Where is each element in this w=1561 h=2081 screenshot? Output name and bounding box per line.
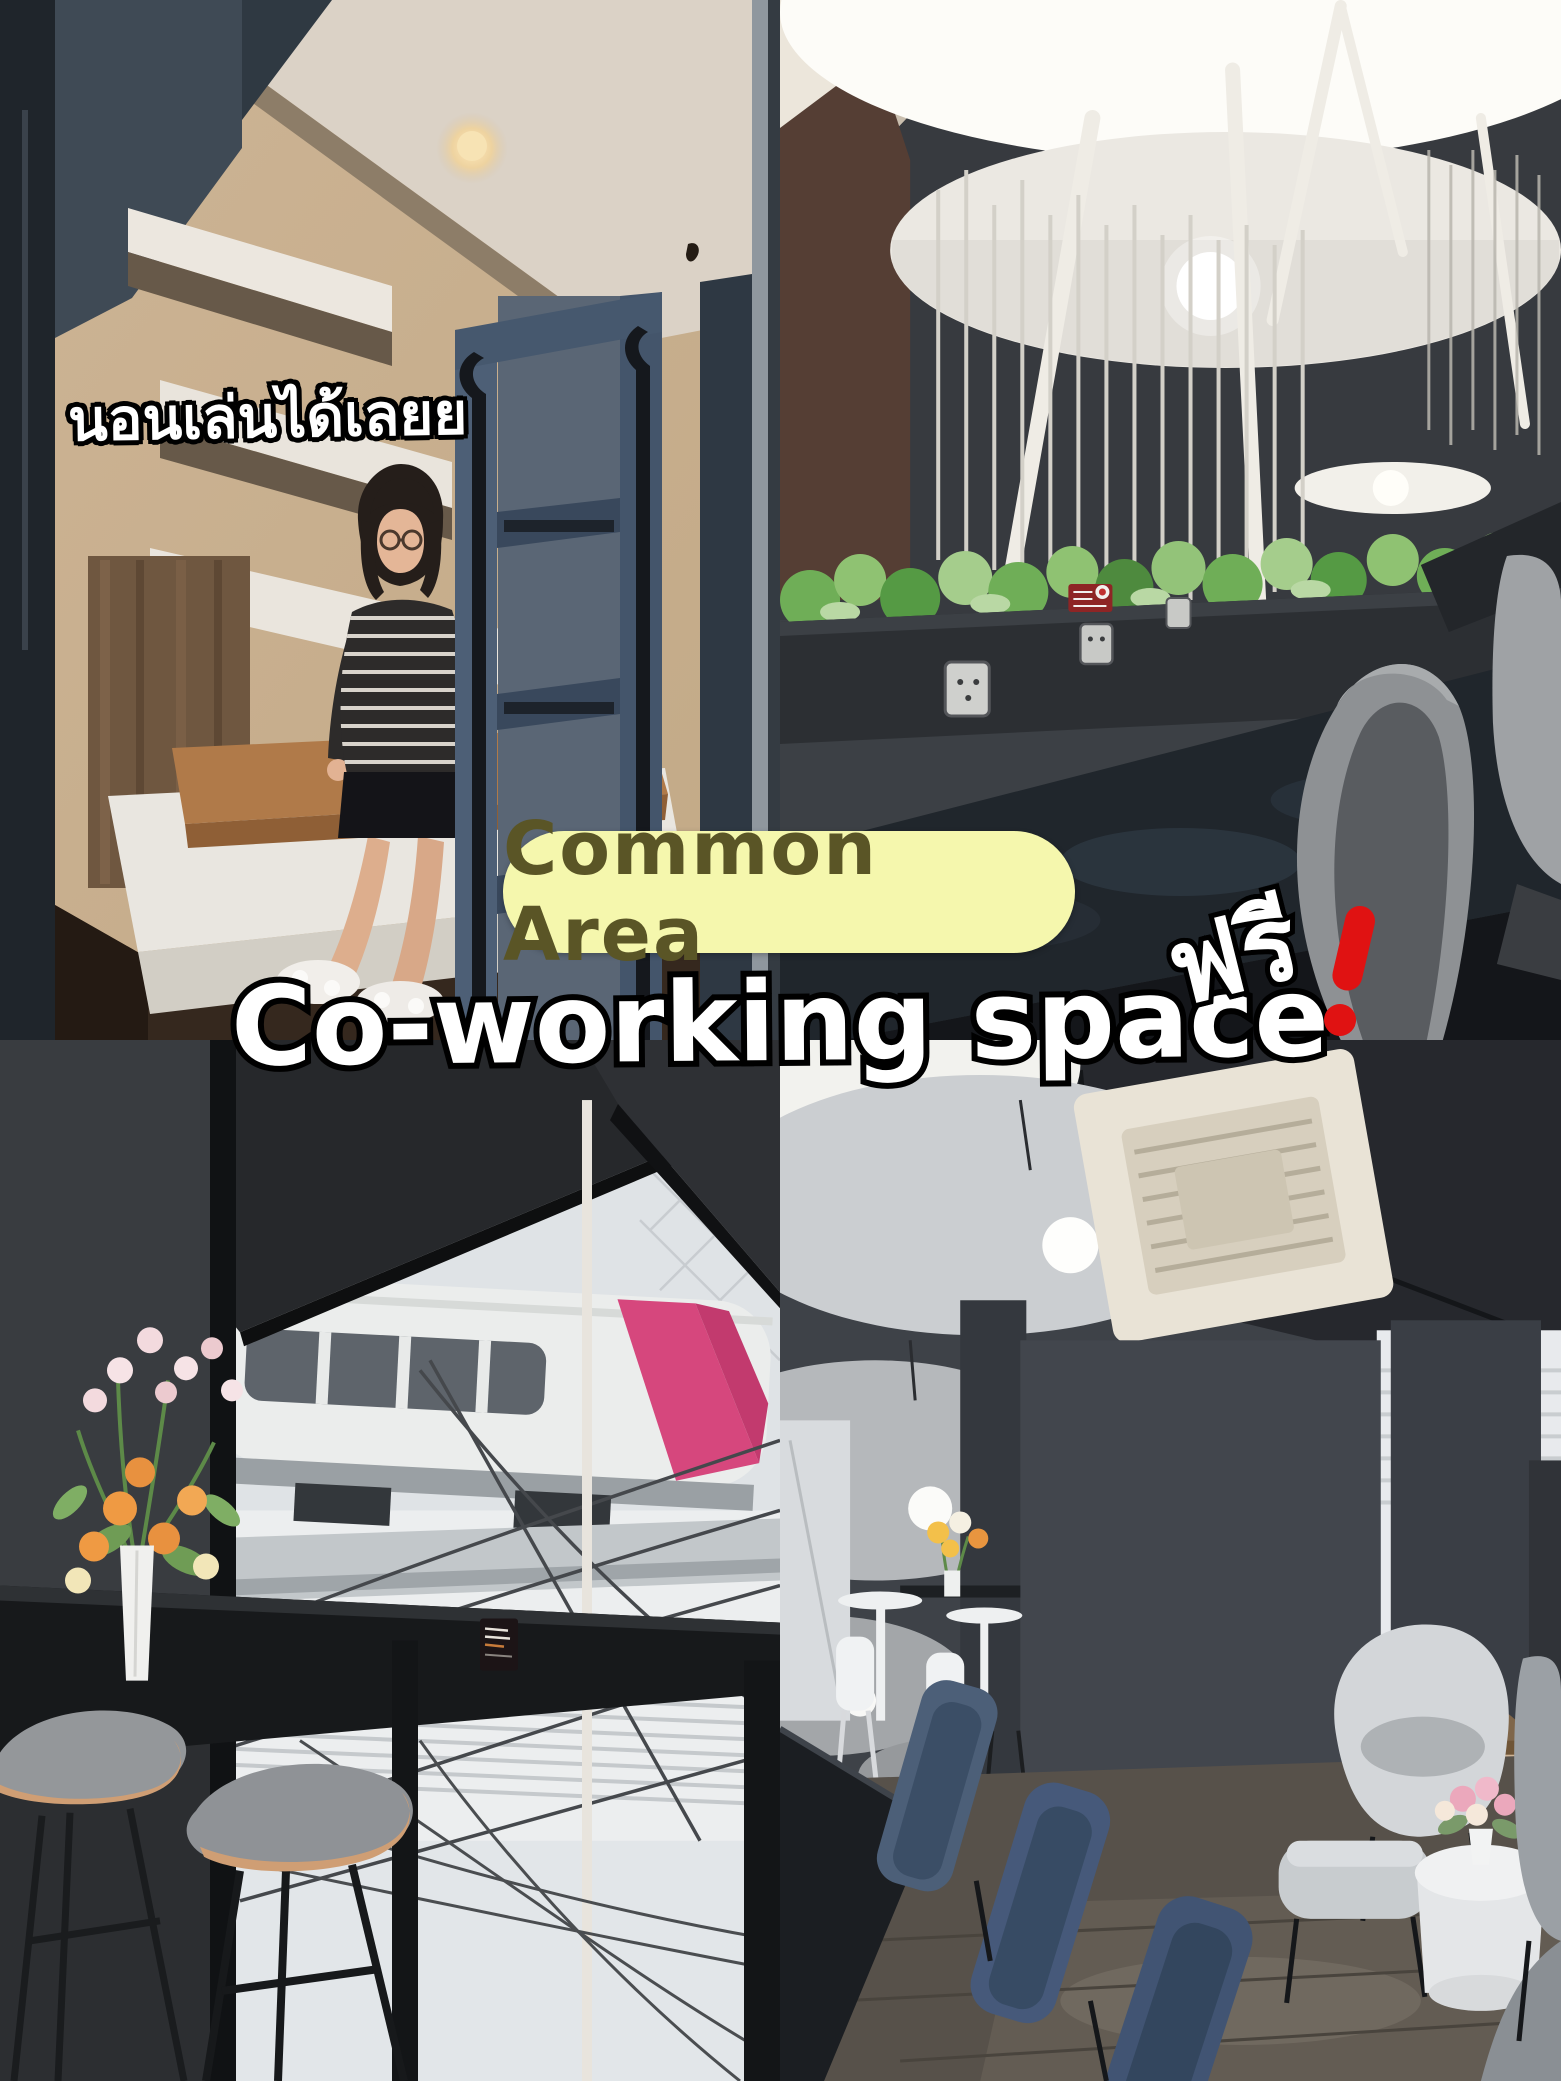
badge-label: Common Area: [503, 806, 1075, 978]
photo-lounge: [780, 1040, 1561, 2081]
ac-unit: [1072, 1047, 1396, 1345]
lounge-scene: [780, 1040, 1561, 2081]
caption-loft-bed: นอนเล่นได้เลยย: [67, 367, 468, 467]
common-area-badge: Common Area: [503, 831, 1075, 953]
warning-sign: [1068, 584, 1112, 612]
collage: นอนเล่นได้เลยย: [0, 0, 1561, 2081]
train-view-scene: [0, 1040, 780, 2081]
window-sign: [480, 1619, 518, 1671]
photo-train-view: เห็นวิวรถไฟฟ้าฉ่ำ: [0, 1040, 780, 2081]
